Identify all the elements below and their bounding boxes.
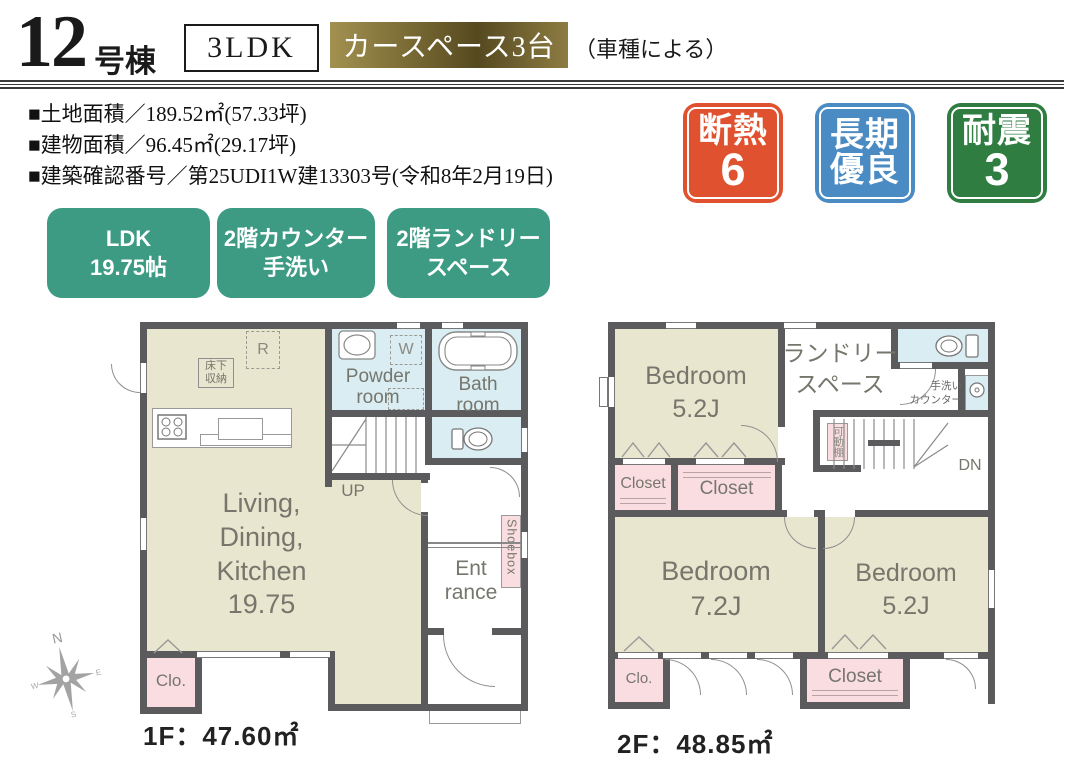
car-space-note: （車種による）	[574, 32, 727, 64]
door-arc	[757, 659, 793, 695]
badge-earthquake: 耐震 3	[947, 103, 1047, 203]
entrance-step	[428, 542, 521, 548]
bathtub-icon	[438, 331, 518, 371]
wall	[425, 322, 432, 417]
porch-step	[429, 711, 521, 724]
bifold-door-mark	[692, 440, 748, 458]
closet-rod	[812, 690, 898, 696]
window	[197, 651, 280, 658]
floor1-caption: 1F：47.60㎡	[143, 716, 299, 753]
handwash-counter-label: 手洗い カウンター	[902, 380, 962, 407]
building-area-line: ■建物面積／96.45㎡(29.17坪)	[28, 129, 296, 159]
closet-opening	[696, 458, 744, 465]
closet-opening	[618, 652, 658, 659]
badge-earthquake-grade: 3	[953, 149, 1041, 192]
window	[521, 532, 528, 558]
wall	[608, 322, 615, 659]
wall	[521, 322, 528, 711]
closet-label: Clo.	[148, 670, 194, 691]
window	[397, 322, 420, 329]
window	[784, 322, 816, 329]
movable-shelf-label: 可動棚	[831, 426, 844, 458]
window	[988, 570, 995, 608]
wall	[492, 628, 528, 635]
closet-c-label: Closet	[808, 665, 902, 689]
stove-icon	[157, 414, 187, 440]
wall	[140, 707, 202, 714]
plan-type-box: 3LDK	[184, 24, 319, 72]
entrance-label: Ent rance	[436, 557, 506, 605]
window-bay	[599, 377, 608, 407]
closet-b-label: Closet	[680, 477, 773, 501]
closet-a-label: Closet	[616, 474, 670, 494]
wall	[855, 510, 995, 517]
wall	[325, 473, 430, 480]
wall	[140, 651, 147, 714]
badge-insulation: 断熱 6	[683, 103, 783, 203]
refrigerator-symbol: R	[246, 331, 280, 369]
unit-number-suffix: 号棟	[94, 36, 156, 81]
wall	[903, 659, 910, 709]
sink-icon	[338, 330, 376, 360]
land-area-line: ■土地面積／189.52㎡(57.33坪)	[28, 98, 307, 128]
door-opening	[755, 652, 793, 659]
door-arc	[111, 364, 140, 393]
toilet-icon	[450, 424, 494, 454]
feature-laundry-space: 2階ランドリー スペース	[387, 208, 550, 298]
wall	[800, 702, 910, 709]
window	[290, 651, 330, 658]
door-opening	[900, 362, 932, 369]
wall	[421, 512, 428, 711]
car-space-label: カースペース3台	[342, 25, 555, 65]
closet-opening	[828, 652, 888, 659]
laundry-space-label: ランドリー スペース	[782, 338, 898, 400]
compass-w: W	[30, 681, 40, 691]
wall	[425, 417, 432, 465]
bedroom-b-label: Bedroom 7.2J	[646, 554, 786, 624]
badge-frame: 長期 優良	[819, 107, 911, 199]
feature-ldk-size: LDK 19.75帖	[47, 208, 210, 298]
handwash-sink-icon	[968, 380, 986, 400]
badge-frame: 断熱 6	[687, 107, 779, 199]
closet-opening	[623, 458, 665, 465]
closet-rod	[620, 498, 666, 504]
confirmation-line: ■建築確認番号／第25UDI1W建13303号(令和8年2月19日)	[28, 160, 553, 190]
toilet-icon	[932, 332, 982, 360]
wall	[608, 652, 615, 709]
badge-longterm-label2: 優良	[821, 153, 909, 188]
window	[666, 322, 696, 329]
bifold-door-mark	[830, 632, 888, 650]
clo-2f-label: Clo.	[616, 670, 662, 689]
wall	[813, 410, 995, 417]
stairs-up	[332, 417, 421, 473]
floor-plan-1f: 床下 収納 R W UP Living, Dining, Kitchen 19.…	[140, 322, 530, 712]
bedroom-c-label: Bedroom 5.2J	[836, 557, 976, 622]
badge-long-term-quality: 長期 優良	[815, 103, 915, 203]
wall	[608, 510, 787, 517]
door-opening	[709, 652, 747, 659]
powder-room-label: Powder room	[336, 366, 420, 409]
bifold-door-mark	[620, 440, 672, 458]
bifold-door-mark	[620, 634, 660, 652]
bedroom-a-label: Bedroom 5.2J	[626, 360, 766, 425]
window	[521, 428, 528, 452]
wall	[195, 658, 202, 714]
wall	[671, 465, 678, 510]
wall	[428, 628, 444, 635]
door-arc	[490, 467, 520, 497]
wall	[140, 322, 528, 329]
wall	[325, 322, 332, 487]
bifold-door-mark	[150, 638, 190, 654]
door-opening	[944, 652, 978, 659]
feature-counter-sink: 2階カウンター 手洗い	[217, 208, 375, 298]
window	[608, 377, 615, 407]
door-opening	[663, 652, 701, 659]
underfloor-storage-label: 床下 収納	[198, 358, 234, 388]
ldk-label: Living, Dining, Kitchen 19.75	[174, 487, 349, 622]
compass-s: S	[70, 710, 77, 720]
floor-plan-2f: DN Bedroom 5.2J ランドリー スペース 手洗い カウンター 可動棚…	[608, 322, 997, 708]
bath-room-label: Bath room	[438, 374, 518, 417]
plan-type-label: 3LDK	[207, 31, 296, 65]
header-divider	[0, 80, 1064, 89]
badge-frame: 耐震 3	[951, 107, 1043, 199]
kitchen-sink	[218, 418, 263, 440]
compass-n: N	[51, 629, 64, 647]
compass-e: E	[95, 668, 102, 678]
wall	[425, 458, 528, 465]
badge-longterm-label1: 長期	[821, 118, 909, 153]
door-arc	[946, 659, 976, 689]
door-opening	[140, 363, 147, 393]
window	[442, 322, 463, 329]
compass-rose: N E S W	[22, 624, 109, 725]
badge-insulation-grade: 6	[689, 149, 777, 192]
wall	[328, 704, 528, 711]
wall	[328, 651, 335, 711]
wall	[608, 702, 670, 709]
door-arc	[711, 659, 747, 695]
wall	[813, 410, 820, 472]
washer-symbol: W	[390, 335, 422, 365]
wall	[775, 465, 782, 510]
unit-number: 12	[16, 0, 86, 85]
car-space-banner: カースペース3台	[330, 22, 568, 68]
window	[140, 518, 147, 550]
door-arc	[665, 659, 701, 695]
stairs-down-label: DN	[948, 456, 992, 476]
door-arc	[443, 635, 495, 687]
floor2-caption: 2F：48.85㎡	[617, 724, 773, 761]
